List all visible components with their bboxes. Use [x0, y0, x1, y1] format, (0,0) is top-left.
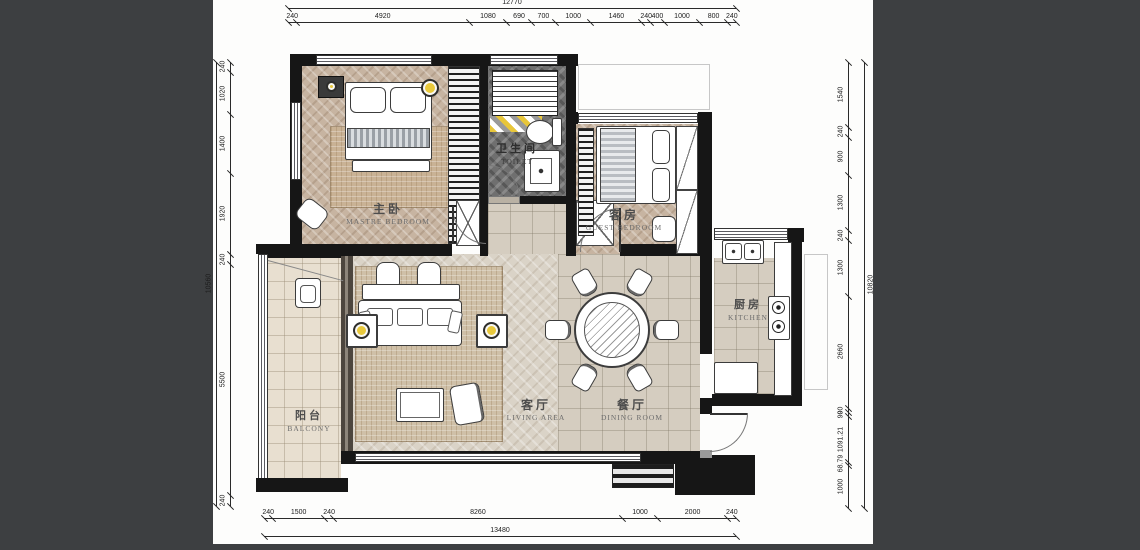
dim-segment-top-6: 1460	[609, 13, 625, 20]
dim-segment-top-7: 240	[640, 13, 652, 20]
dim-segment-bottom-5: 2000	[685, 509, 701, 516]
dim-segment-left-1: 1020	[220, 73, 227, 113]
master-bed-pillow-left	[350, 87, 386, 113]
guest-wardrobe-upper	[676, 126, 698, 190]
dim-segment-left-2: 1400	[220, 124, 227, 164]
dim-segment-bottom-1: 1500	[291, 509, 307, 516]
dim-segment-right-2: 900	[838, 136, 845, 176]
dim-segment-top-3: 690	[513, 13, 525, 20]
dim-segment-bottom-0: 240	[262, 509, 274, 516]
dim-segment-bottom-2: 240	[323, 509, 335, 516]
dim-total-label-left: 10560	[206, 264, 213, 304]
dining-chair-4	[545, 320, 571, 340]
dim-segment-right-6: 2660	[838, 332, 845, 372]
master-floor-lamp	[421, 79, 439, 97]
exterior-ledge-top	[578, 64, 710, 110]
guest-bed-pillow-top	[652, 130, 670, 164]
wall-dining-kitchen	[700, 254, 712, 354]
master-bed-bench	[352, 160, 430, 172]
dim-segment-top-1: 4920	[375, 13, 391, 20]
window-toilet-top	[490, 55, 558, 65]
living-accent-chair-right	[417, 262, 441, 286]
living-accent-chair-left	[376, 262, 400, 286]
stove-burner-top	[772, 301, 785, 314]
wall-guest-right	[698, 112, 712, 256]
dim-segment-bottom-6: 240	[726, 509, 738, 516]
guest-bed-pillow-bottom	[652, 168, 670, 202]
dim-segment-top-11: 240	[726, 13, 738, 20]
guest-dresser	[578, 128, 594, 236]
window-balcony-left	[258, 254, 268, 480]
balcony-basin	[295, 278, 321, 308]
wall-kitchen-top-cap	[788, 228, 804, 242]
dim-total-label-bottom: 13480	[490, 527, 509, 534]
master-bed-blanket	[347, 128, 430, 148]
dim-segment-bottom-3: 8260	[470, 509, 486, 516]
wall-balcony-left-cap-top	[256, 244, 268, 254]
living-coffee-table	[396, 388, 444, 422]
guest-chair	[652, 216, 676, 242]
dining-chair-1	[653, 320, 679, 340]
wall-balcony-top	[262, 244, 346, 258]
living-console-table	[362, 284, 460, 300]
kitchen-sink-basin-left	[725, 243, 742, 260]
guest-bed-blanket	[600, 128, 636, 202]
master-door-leaf	[452, 206, 454, 244]
dim-total-label-top: 12770	[502, 0, 521, 6]
wall-toilet-right	[566, 54, 576, 256]
window-master-top	[316, 55, 432, 65]
floor-plan-canvas: 主卧 MASTRE BEDROOM 卫生间 TOILET 客房 GUEST BE…	[0, 0, 1140, 550]
master-nightstand-lamp	[326, 81, 337, 92]
dim-segment-top-0: 240	[286, 13, 298, 20]
dim-segment-top-8: 400	[652, 13, 664, 20]
toilet-bowl	[526, 120, 554, 144]
dim-segment-left-3: 1920	[220, 194, 227, 234]
wall-guest-top-left	[566, 112, 578, 124]
dim-segment-left-5: 5500	[220, 360, 227, 400]
window-master-left	[291, 102, 301, 180]
kitchen-sink-basin-right	[744, 243, 761, 260]
toilet-sink-basin	[530, 158, 552, 184]
balcony-basin-inner	[300, 285, 316, 303]
dimension-total-top	[288, 8, 736, 9]
dim-segment-right-0: 1540	[838, 74, 845, 114]
sofa-cushion-2	[397, 308, 423, 326]
living-lamp-right	[483, 322, 500, 339]
dimension-total-bottom	[264, 536, 736, 537]
dimension-total-right	[864, 62, 865, 508]
dim-segment-top-2: 1080	[480, 13, 496, 20]
living-lamp-left	[353, 322, 370, 339]
window-living-bottom	[355, 453, 641, 462]
dim-segment-top-4: 700	[538, 13, 550, 20]
window-guest-top	[578, 113, 698, 123]
dim-segment-bottom-4: 1000	[632, 509, 648, 516]
exterior-ledge-right	[804, 254, 828, 390]
entry-landing-steps	[612, 464, 674, 488]
dim-segment-top-5: 1000	[565, 13, 581, 20]
window-kitchen-top	[714, 228, 788, 240]
guest-door-leaf	[619, 208, 621, 252]
toilet-shower	[492, 70, 558, 116]
dim-segment-right-11: 1000	[838, 466, 845, 506]
balcony-living-divider	[341, 256, 353, 452]
dim-segment-top-10: 800	[708, 13, 720, 20]
kitchen-base-cabinet	[714, 362, 758, 394]
hallway-floor	[488, 196, 566, 256]
wall-entry-top	[700, 398, 712, 414]
wall-balcony-bottom	[256, 478, 348, 492]
wall-guest-bottom	[620, 244, 712, 256]
dining-table-glass	[584, 302, 640, 358]
guest-wardrobe-lower	[676, 190, 698, 254]
dim-segment-top-9: 1000	[674, 13, 690, 20]
dim-total-label-right: 10820	[868, 265, 875, 305]
wall-toilet-bottom	[520, 196, 566, 204]
entry-column	[675, 455, 755, 495]
dim-segment-right-5: 1300	[838, 248, 845, 288]
dimension-chain-left	[230, 62, 231, 506]
dimension-chain-top	[288, 22, 736, 23]
dim-segment-left-4: 240	[220, 239, 227, 279]
dimension-total-left	[216, 62, 217, 506]
stove-burner-bottom	[772, 320, 785, 333]
toilet-tank	[552, 118, 562, 146]
dim-segment-left-6: 240	[220, 480, 227, 520]
